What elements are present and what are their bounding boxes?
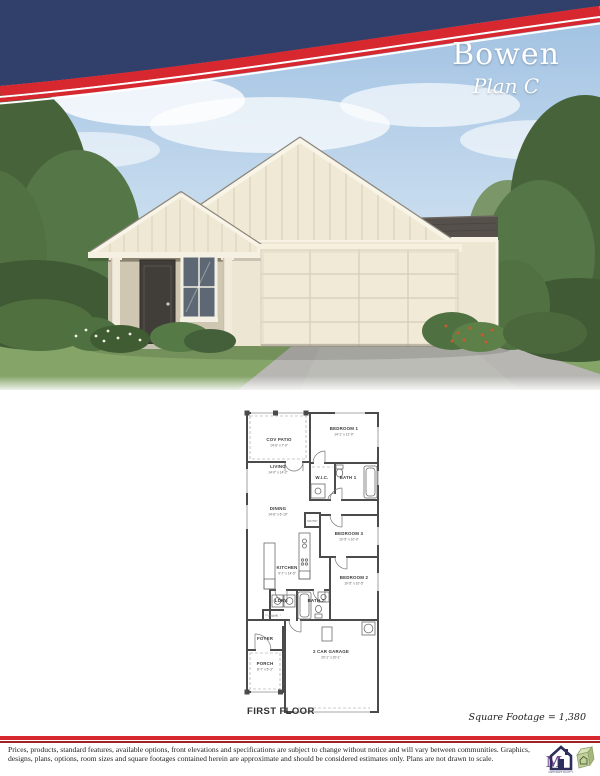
room-dims: 10'-5" x 10'-0" bbox=[339, 538, 359, 542]
room-name: COV PATIO bbox=[266, 437, 292, 442]
slab-outlines bbox=[250, 416, 306, 689]
floor-plan: COV PATIO14'-6" x 7'-0"BEDROOM 114'-1" x… bbox=[235, 405, 385, 715]
room-dims: 10'-5" x 10'-5" bbox=[344, 582, 364, 586]
square-footage-label: Square Footage = 1,380 bbox=[469, 712, 586, 723]
room-name: BATH 1 bbox=[340, 475, 357, 480]
room-name: 2 CAR GARAGE bbox=[313, 649, 349, 654]
footer: Prices, products, standard features, ava… bbox=[0, 736, 600, 764]
room-name: BEDROOM 2 bbox=[340, 575, 369, 580]
small-label: PANTRY bbox=[307, 519, 318, 523]
room-dims: 14'-0" x 14'-2" bbox=[268, 471, 288, 475]
room-dims: 14'-6" x 6'-10" bbox=[268, 513, 288, 517]
flyer-page: Bowen Plan C bbox=[0, 0, 600, 776]
room-name: FOYER bbox=[257, 636, 274, 641]
room-name: BATH 2 bbox=[308, 598, 325, 603]
cube-icon bbox=[577, 747, 594, 768]
room-dims: 9'-7" x 14'-5" bbox=[278, 572, 296, 576]
plan-subtitle: Plan C bbox=[452, 74, 560, 98]
small-label: COATS bbox=[268, 614, 277, 618]
logo-caption: OPPORTUNITY bbox=[549, 770, 574, 774]
window-sill bbox=[180, 318, 218, 322]
header-text: Bowen Plan C bbox=[452, 40, 560, 98]
photo-bottom-fade bbox=[0, 376, 600, 390]
door-handle bbox=[166, 302, 169, 305]
room-dims: 14'-6" x 7'-0" bbox=[270, 444, 288, 448]
room-dims: 8'-7" x 5'-3" bbox=[257, 668, 273, 672]
room-name: LDRY bbox=[275, 598, 288, 603]
room-name: PORCH bbox=[257, 661, 274, 666]
first-floor-label: FIRST FLOOR bbox=[247, 706, 315, 717]
footer-darkred-rule bbox=[0, 741, 600, 743]
room-name: BEDROOM 3 bbox=[335, 531, 364, 536]
disclaimer-text: Prices, products, standard features, ava… bbox=[8, 746, 553, 764]
front-window bbox=[180, 256, 218, 322]
room-name: LIVING bbox=[270, 464, 286, 469]
builder-logo: M OPPORTUNITY bbox=[545, 742, 597, 774]
room-name: W.I.C. bbox=[315, 475, 328, 480]
room-dims: 14'-1" x 12'-0" bbox=[334, 433, 354, 437]
plan-title: Bowen bbox=[452, 40, 560, 70]
room-name: KITCHEN bbox=[277, 565, 298, 570]
room-dims: 20'-1" x 20'-1" bbox=[321, 656, 341, 660]
room-name: BEDROOM 1 bbox=[330, 426, 359, 431]
room-name: DINING bbox=[270, 506, 287, 511]
